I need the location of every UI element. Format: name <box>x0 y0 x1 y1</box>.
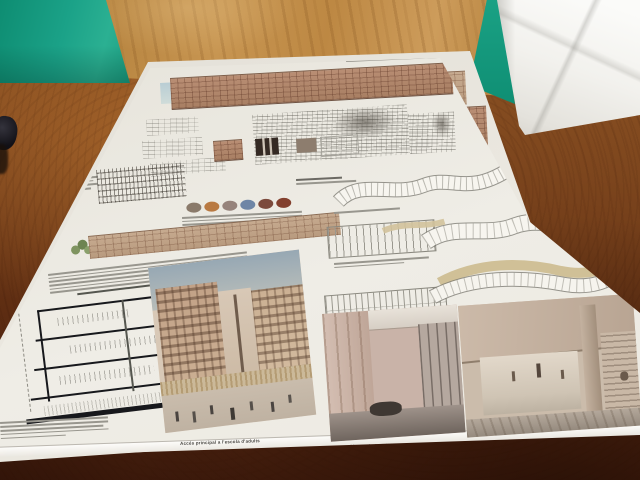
floor-plan-level-1 <box>330 155 518 214</box>
site-sketch-1 <box>146 116 199 136</box>
interior-render-entrance <box>458 294 640 438</box>
material-swatch <box>222 200 238 211</box>
reference-photo-small <box>296 138 317 153</box>
site-sketch-2 <box>142 137 203 159</box>
photo-scene: Accés principal a l'escola d'adults <box>0 0 640 480</box>
material-swatch <box>276 197 292 208</box>
material-swatch <box>240 199 256 210</box>
exterior-render <box>148 249 316 433</box>
main-building-elevation <box>170 62 453 110</box>
render-right-building <box>250 284 311 373</box>
material-swatch <box>186 202 202 213</box>
roof-plan-axonometric <box>96 162 187 204</box>
detail-line-drawings <box>320 134 359 157</box>
reference-photo-brick <box>213 139 243 162</box>
material-swatch <box>258 198 274 209</box>
interior-render-corridor <box>322 305 466 442</box>
margin-sketch <box>356 114 430 152</box>
reference-photo-dark <box>255 137 279 156</box>
render-left-building <box>155 281 227 384</box>
legend-paragraph <box>0 416 109 441</box>
material-swatch <box>204 201 220 212</box>
